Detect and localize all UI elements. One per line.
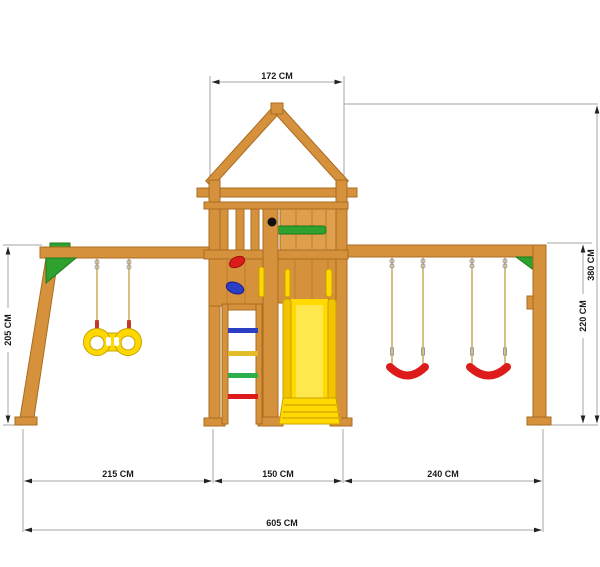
trapeze-slot bbox=[114, 337, 119, 346]
ladder bbox=[222, 304, 262, 424]
door-post bbox=[263, 209, 278, 419]
swing-arm bbox=[347, 245, 551, 425]
right-post-base bbox=[527, 417, 551, 425]
eave-beam bbox=[197, 188, 357, 197]
grab-handle bbox=[326, 269, 332, 297]
swing-1 bbox=[390, 257, 425, 376]
fence-top-rail bbox=[204, 202, 348, 209]
ladder-rail-right bbox=[256, 304, 262, 424]
trapeze-ring-left-hole bbox=[90, 336, 104, 350]
swing-2 bbox=[470, 257, 507, 376]
slide bbox=[279, 299, 341, 424]
ladder-rung-yellow bbox=[228, 351, 258, 356]
diagram-canvas: 172 CM 380 CM 220 CM 205 CM 215 CM 150 C… bbox=[0, 0, 600, 567]
trapeze-bar bbox=[84, 329, 142, 356]
label-beam-height: 220 CM bbox=[578, 300, 588, 332]
label-bottom-right: 240 CM bbox=[427, 469, 459, 479]
tower-post-right bbox=[336, 180, 347, 425]
roof-peak-cap bbox=[271, 103, 283, 114]
label-top-width: 172 CM bbox=[261, 71, 293, 81]
right-post-tab bbox=[527, 296, 533, 309]
ladder-rail-left bbox=[222, 304, 228, 424]
grab-handle bbox=[285, 269, 290, 297]
label-total-width: 605 CM bbox=[266, 518, 298, 528]
left-green-bracket bbox=[46, 258, 76, 283]
slide-bed-highlight bbox=[296, 305, 323, 413]
fence-slat bbox=[236, 209, 244, 250]
roof-rafter-right bbox=[274, 106, 349, 187]
swing-seat bbox=[390, 367, 425, 376]
left-leg-base bbox=[15, 417, 37, 425]
ladder-rung-green bbox=[228, 373, 258, 378]
swing-beam bbox=[347, 245, 546, 257]
label-bottom-left: 215 CM bbox=[102, 469, 134, 479]
swing-seat bbox=[470, 367, 507, 376]
grab-handle bbox=[259, 267, 264, 297]
trapeze-ring-right-hole bbox=[121, 336, 135, 350]
rope-clip bbox=[127, 320, 131, 329]
ladder-rung-red bbox=[228, 394, 258, 399]
playset-dimension-diagram: 172 CM 380 CM 220 CM 205 CM 215 CM 150 C… bbox=[0, 0, 600, 567]
trapeze-beam bbox=[40, 247, 212, 258]
fence-slat bbox=[220, 209, 228, 250]
tower bbox=[197, 103, 357, 426]
trapeze-slot bbox=[106, 337, 111, 346]
porthole bbox=[268, 218, 277, 227]
label-total-height: 380 CM bbox=[586, 249, 596, 281]
roof-rafter-left bbox=[206, 106, 281, 187]
right-post bbox=[533, 245, 546, 425]
label-bottom-center: 150 CM bbox=[262, 469, 294, 479]
ladder-rung-blue bbox=[228, 328, 258, 333]
fence-slat bbox=[251, 209, 259, 250]
rope-clip bbox=[95, 320, 99, 329]
trapeze-arm bbox=[15, 243, 212, 425]
green-safety-bar bbox=[277, 226, 326, 234]
slide-exit-flare bbox=[279, 398, 340, 424]
label-left-height: 205 CM bbox=[3, 314, 13, 346]
